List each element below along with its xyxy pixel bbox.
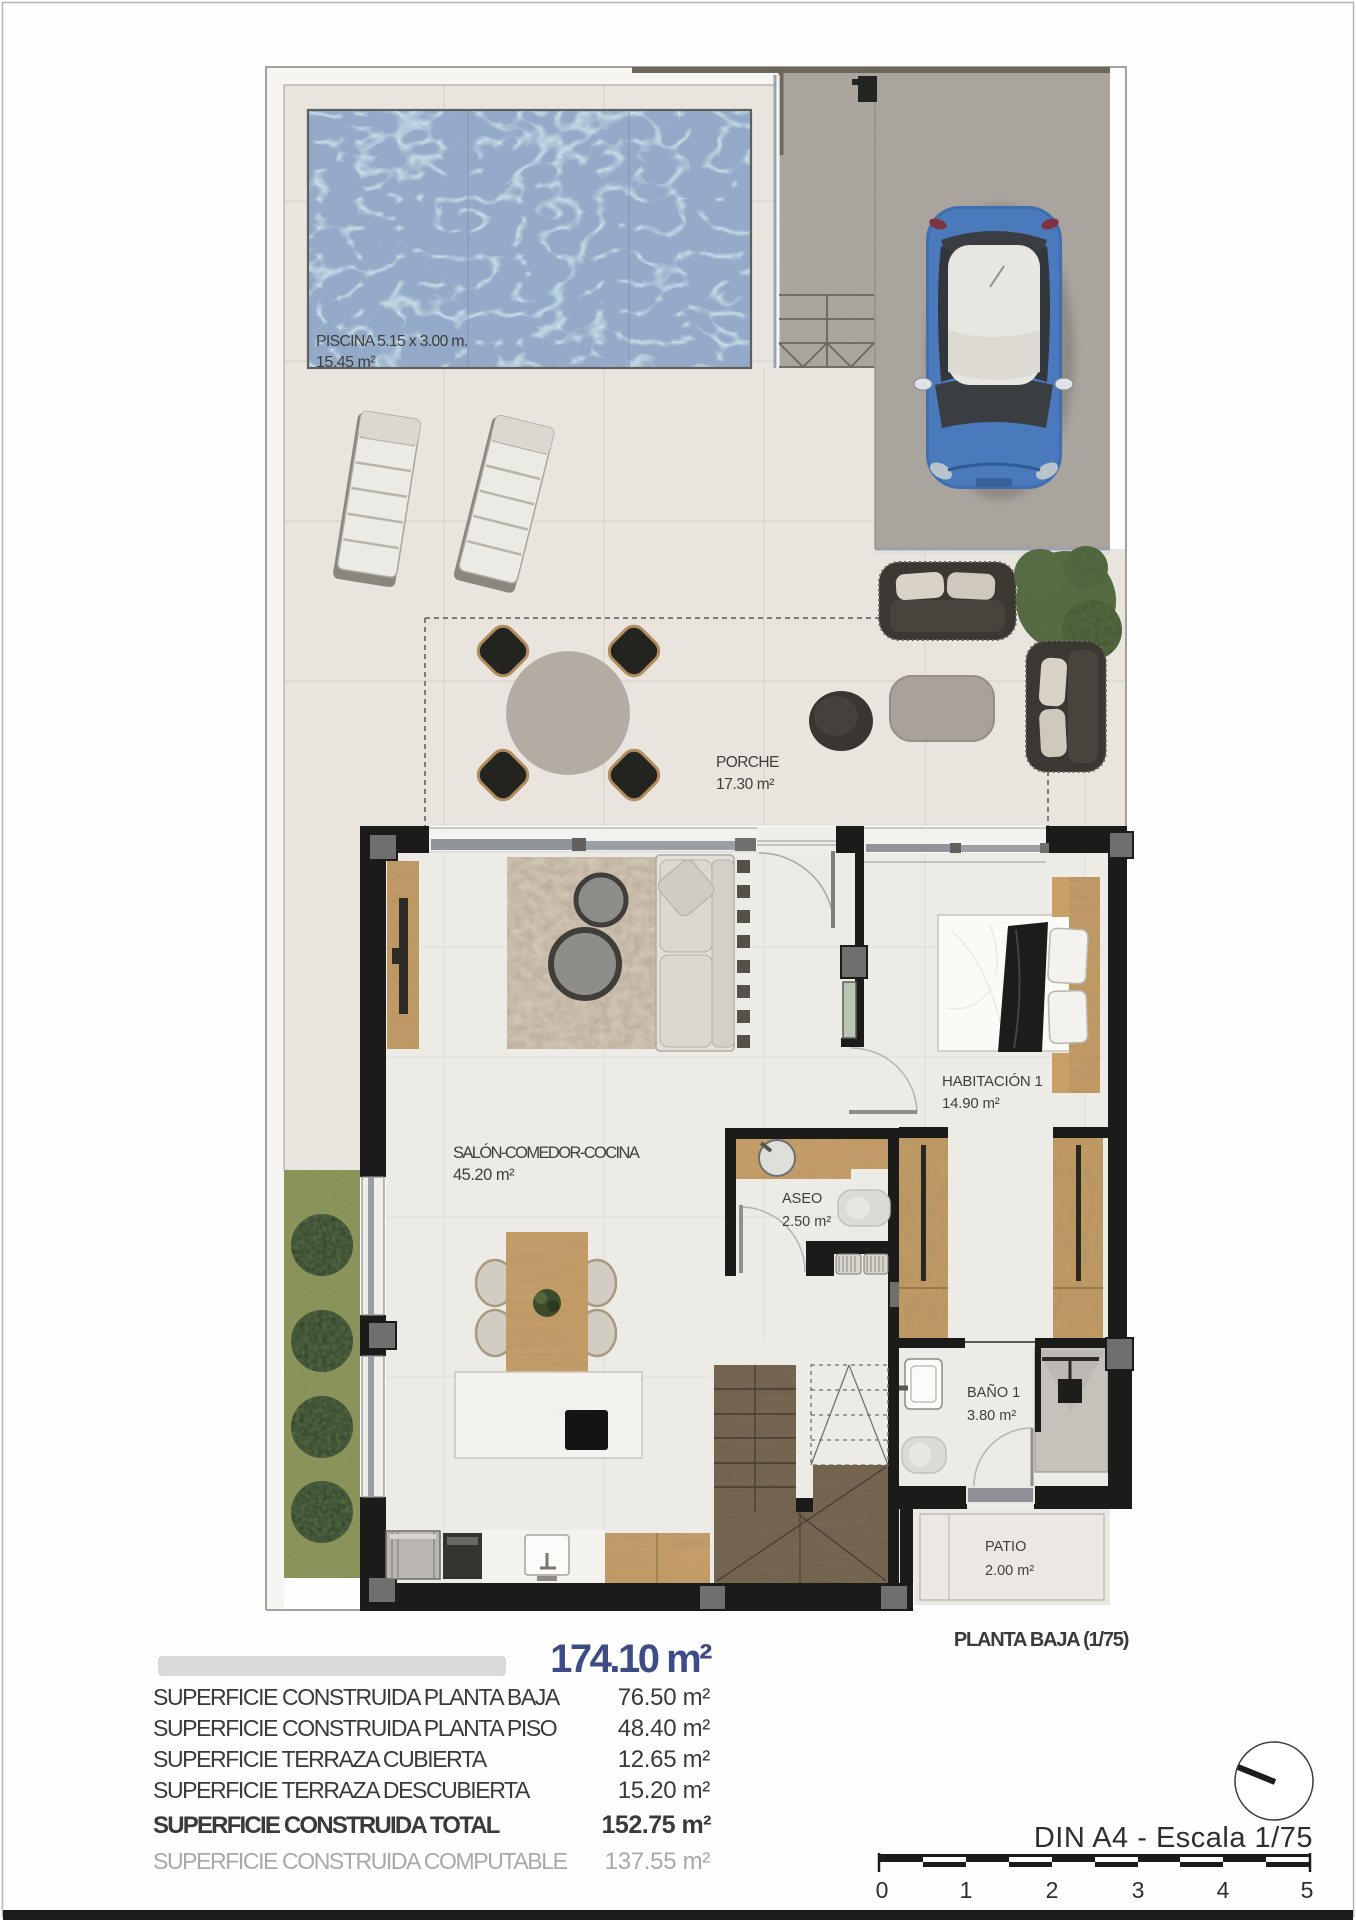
svg-text:152.75 m²: 152.75 m²	[602, 1811, 712, 1839]
svg-text:2.50 m²: 2.50 m²	[782, 1214, 831, 1230]
svg-text:3: 3	[1132, 1877, 1145, 1903]
svg-text:SUPERFICIE CONSTRUIDA COMPUTAB: SUPERFICIE CONSTRUIDA COMPUTABLE	[153, 1848, 568, 1874]
svg-text:2.00 m²: 2.00 m²	[985, 1563, 1034, 1579]
svg-text:12.65 m²: 12.65 m²	[618, 1746, 711, 1773]
svg-text:SALÓN-COMEDOR-COCINA: SALÓN-COMEDOR-COCINA	[453, 1143, 640, 1162]
svg-text:DIN A4 - Escala 1/75: DIN A4 - Escala 1/75	[1034, 1822, 1313, 1854]
svg-text:SUPERFICIE CONSTRUIDA PLANTA B: SUPERFICIE CONSTRUIDA PLANTA BAJA	[153, 1684, 561, 1710]
svg-text:174.10 m²: 174.10 m²	[550, 1637, 712, 1681]
svg-text:17.30 m²: 17.30 m²	[716, 776, 774, 793]
svg-text:3.80 m²: 3.80 m²	[967, 1408, 1016, 1424]
svg-text:HABITACIÓN 1: HABITACIÓN 1	[942, 1073, 1043, 1090]
svg-text:45.20 m²: 45.20 m²	[453, 1166, 515, 1184]
svg-text:PORCHE: PORCHE	[716, 754, 779, 771]
svg-text:1: 1	[960, 1877, 973, 1903]
svg-text:PLANTA BAJA (1/75): PLANTA BAJA (1/75)	[954, 1629, 1129, 1651]
svg-text:137.55 m²: 137.55 m²	[605, 1848, 711, 1875]
svg-text:15.20 m²: 15.20 m²	[618, 1777, 711, 1804]
svg-text:SUPERFICIE CONSTRUIDA TOTAL: SUPERFICIE CONSTRUIDA TOTAL	[153, 1812, 500, 1839]
svg-text:5: 5	[1301, 1877, 1314, 1903]
svg-text:0: 0	[876, 1877, 889, 1903]
svg-text:PISCINA 5.15 x 3.00 m.: PISCINA 5.15 x 3.00 m.	[316, 333, 467, 350]
svg-text:15.45 m²: 15.45 m²	[316, 354, 376, 371]
svg-text:SUPERFICIE TERRAZA DESCUBIERTA: SUPERFICIE TERRAZA DESCUBIERTA	[153, 1777, 531, 1803]
svg-text:SUPERFICIE TERRAZA CUBIERTA: SUPERFICIE TERRAZA CUBIERTA	[153, 1746, 488, 1772]
svg-text:SUPERFICIE CONSTRUIDA PLANTA P: SUPERFICIE CONSTRUIDA PLANTA PISO	[153, 1715, 557, 1741]
svg-text:76.50 m²: 76.50 m²	[618, 1684, 711, 1711]
svg-text:ASEO: ASEO	[782, 1191, 822, 1207]
svg-text:48.40 m²: 48.40 m²	[618, 1715, 711, 1742]
svg-text:PATIO: PATIO	[985, 1539, 1026, 1555]
svg-text:14.90 m²: 14.90 m²	[942, 1095, 1000, 1112]
svg-text:2: 2	[1046, 1877, 1059, 1903]
svg-text:4: 4	[1217, 1877, 1230, 1903]
svg-text:BAÑO 1: BAÑO 1	[967, 1384, 1020, 1401]
